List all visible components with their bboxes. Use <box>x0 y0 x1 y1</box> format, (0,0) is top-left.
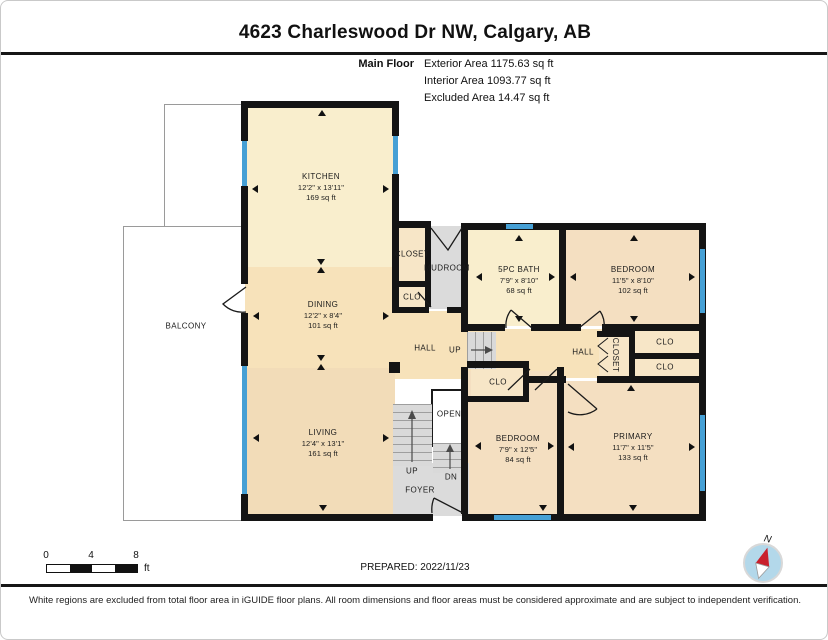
dim-arrow <box>317 355 325 361</box>
room-label-mudroom: MUDROOM <box>424 263 470 273</box>
room-label-kitchen: KITCHEN12'2" x 13'11"169 sq ft <box>298 172 344 203</box>
room-label-balcony: BALCONY <box>165 321 206 331</box>
dim-arrow <box>253 434 259 442</box>
window <box>242 141 247 186</box>
dim-arrow <box>689 273 695 281</box>
wall-segment <box>241 514 433 521</box>
wall-segment <box>397 281 427 287</box>
room-label-bedroom: BEDROOM11'5" x 8'10"102 sq ft <box>611 265 655 296</box>
dim-arrow <box>549 273 555 281</box>
room-label-5pc-bath: 5PC BATH7'9" x 8'10"68 sq ft <box>498 265 540 296</box>
footer-rule <box>1 584 828 587</box>
dim-arrow <box>318 110 326 116</box>
dim-arrow <box>319 505 327 511</box>
wall-segment <box>392 221 431 228</box>
room-label-clo: CLO <box>489 377 507 387</box>
window <box>393 136 398 174</box>
dim-arrow <box>317 364 325 370</box>
floor-plan: KITCHEN12'2" x 13'11"169 sq ftDINING12'2… <box>1 1 827 639</box>
wall-segment <box>635 353 701 359</box>
dim-arrow <box>515 316 523 322</box>
room-label-clo: CLO <box>403 292 421 302</box>
dim-arrow <box>627 385 635 391</box>
dim-arrow <box>515 235 523 241</box>
dim-arrow <box>253 312 259 320</box>
dim-arrow <box>630 235 638 241</box>
room-label-hall: HALL <box>414 343 436 353</box>
wall-segment <box>557 367 564 514</box>
window <box>700 249 705 313</box>
room-balcony-upper <box>164 104 246 230</box>
wall-segment <box>597 376 706 383</box>
dim-arrow <box>629 505 637 511</box>
room-label-bedroom: BEDROOM7'9" x 12'5"84 sq ft <box>496 434 540 465</box>
dim-arrow <box>383 434 389 442</box>
room-label-dn: DN <box>445 472 457 482</box>
floorplan-page: 4623 Charleswood Dr NW, Calgary, AB Main… <box>0 0 828 640</box>
room-label-up: UP <box>406 466 418 476</box>
room-label-foyer: FOYER <box>405 485 435 495</box>
window <box>506 224 533 229</box>
wall-segment <box>241 186 248 284</box>
wall-segment <box>389 362 400 373</box>
room-label-clo: CLO <box>656 362 674 372</box>
dim-arrow <box>630 316 638 322</box>
prepared-date: PREPARED: 2022/11/23 <box>1 562 828 573</box>
wall-segment <box>397 307 429 313</box>
dim-arrow <box>475 442 481 450</box>
wall-segment <box>461 367 468 514</box>
dim-arrow <box>570 273 576 281</box>
dim-arrow <box>317 267 325 273</box>
stairs-down <box>433 443 463 473</box>
wall-segment <box>559 230 566 331</box>
wall-segment <box>392 174 399 313</box>
wall-segment <box>467 396 529 402</box>
disclaimer-text: White regions are excluded from total fl… <box>1 595 828 606</box>
wall-segment <box>461 230 468 332</box>
wall-segment <box>241 101 399 108</box>
wall-segment <box>461 223 706 230</box>
wall-segment <box>241 101 248 141</box>
room-label-primary: PRIMARY11'7" x 11'5"133 sq ft <box>612 432 653 463</box>
dim-arrow <box>689 443 695 451</box>
wall-segment <box>529 376 566 383</box>
scale-tick-8: 8 <box>133 550 139 561</box>
room-label-living: LIVING12'4" x 13'1"161 sq ft <box>302 428 344 459</box>
window <box>242 366 247 494</box>
dim-arrow <box>317 259 325 265</box>
dim-arrow <box>252 185 258 193</box>
window <box>700 415 705 491</box>
wall-segment <box>461 324 505 331</box>
room-label-up: UP <box>449 345 461 355</box>
room-label-open: OPEN <box>437 409 461 419</box>
scale-tick-0: 0 <box>43 550 49 561</box>
dim-arrow <box>539 505 547 511</box>
room-label-dining: DINING12'2" x 8'4"101 sq ft <box>304 300 342 331</box>
wall-segment <box>392 101 399 136</box>
room-label-hall: HALL <box>572 347 594 357</box>
dim-arrow <box>568 443 574 451</box>
dim-arrow <box>476 273 482 281</box>
dim-arrow <box>383 185 389 193</box>
wall-segment <box>241 313 248 366</box>
room-label-closet: CLOSET <box>395 249 429 259</box>
dim-arrow <box>383 312 389 320</box>
room-label-closet: CLOSET <box>610 338 620 372</box>
window <box>494 515 551 520</box>
room-label-clo: CLO <box>656 337 674 347</box>
wall-segment <box>531 324 581 331</box>
dim-arrow <box>548 442 554 450</box>
wall-segment <box>467 361 529 368</box>
scale-tick-4: 4 <box>88 550 94 561</box>
wall-segment <box>447 307 463 313</box>
stairs-main-up <box>393 404 432 466</box>
room-balcony <box>123 226 246 521</box>
wall-segment <box>602 324 706 331</box>
